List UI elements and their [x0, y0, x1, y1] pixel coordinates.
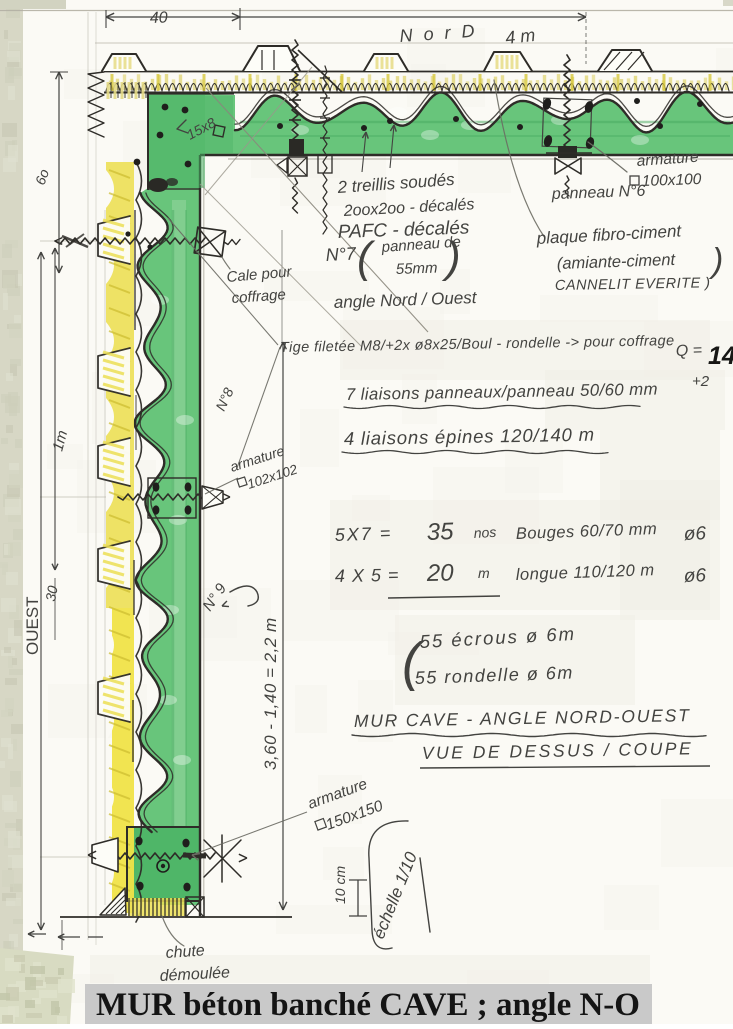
svg-text:30: 30	[42, 584, 60, 602]
svg-text:35: 35	[426, 518, 454, 546]
svg-text:5X7 =: 5X7 =	[334, 523, 392, 545]
svg-text:ø6: ø6	[683, 523, 706, 545]
svg-text:m: m	[478, 565, 490, 581]
svg-text:100x100: 100x100	[642, 171, 702, 190]
svg-text:panneau N°6: panneau N°6	[551, 183, 646, 203]
svg-text:nos: nos	[473, 524, 496, 541]
svg-text:40: 40	[150, 9, 168, 27]
svg-text:3,60 - 1,40 = 2,2 m: 3,60 - 1,40 = 2,2 m	[261, 617, 280, 770]
svg-text:+2: +2	[692, 373, 710, 390]
svg-text:55mm: 55mm	[396, 260, 438, 278]
svg-text:N°7: N°7	[325, 243, 357, 265]
svg-text:4 liaisons épines 120/140 m: 4 liaisons épines 120/140 m	[344, 424, 595, 449]
svg-text:14: 14	[708, 342, 733, 370]
svg-text:Q =: Q =	[676, 342, 703, 360]
svg-text:10 cm: 10 cm	[332, 866, 348, 904]
svg-text:chute: chute	[165, 942, 205, 962]
svg-text:4 m: 4 m	[504, 25, 536, 48]
svg-text:20: 20	[426, 560, 455, 587]
svg-text:ø6: ø6	[683, 565, 706, 587]
svg-text:MUR béton banché CAVE ; angle: MUR béton banché CAVE ; angle N-O	[96, 987, 640, 1023]
svg-text:OUEST: OUEST	[23, 596, 42, 655]
svg-text:4 X 5 =: 4 X 5 =	[335, 565, 400, 586]
svg-text:CANNELIT EVERITE ): CANNELIT EVERITE )	[555, 275, 711, 294]
